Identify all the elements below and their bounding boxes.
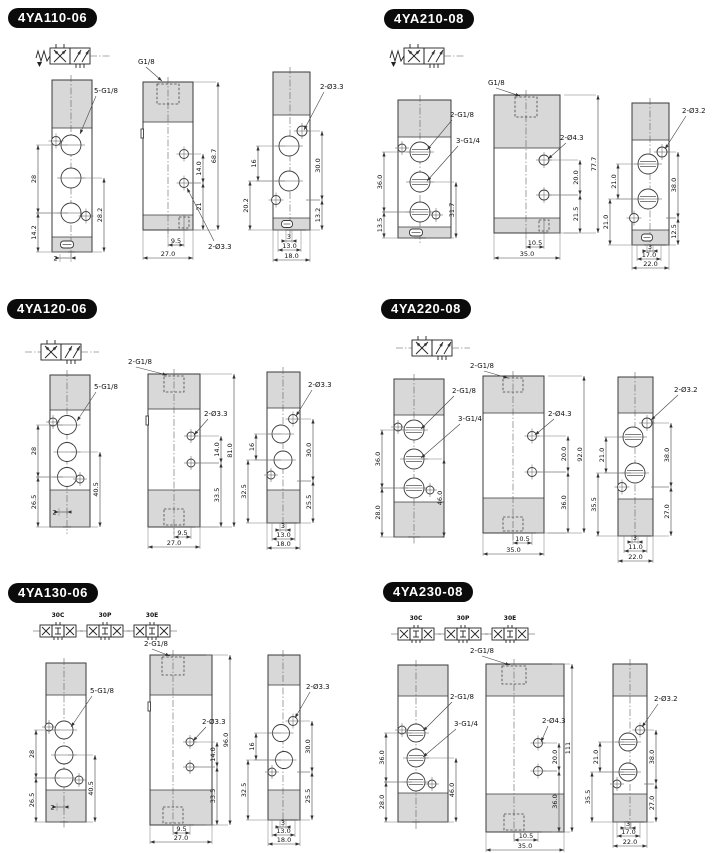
port-label: 2-Ø3.3 xyxy=(208,243,232,251)
dim-label: 18.0 xyxy=(277,836,291,844)
dimension-arrowhead xyxy=(384,782,387,787)
dimension-arrowhead xyxy=(93,818,96,823)
end-cap-shade xyxy=(398,793,448,822)
dim-label: 11.0 xyxy=(628,543,642,551)
dimension-arrowhead xyxy=(380,488,383,493)
port-label: 2-Ø3.3 xyxy=(204,410,228,418)
dimension-arrowhead xyxy=(556,256,561,259)
dim-label: 21.0 xyxy=(598,448,606,462)
dim-label: 35.5 xyxy=(590,497,598,511)
dim-label: 17.0 xyxy=(621,828,635,836)
leader-line xyxy=(187,188,214,241)
dimension-arrowhead xyxy=(246,460,249,465)
dimension-arrowhead xyxy=(557,743,560,748)
valve-symbol-box xyxy=(424,48,444,64)
dimension-arrowhead xyxy=(256,177,259,182)
port-label: 2-Ø4.3 xyxy=(560,134,584,142)
dimension-arrowhead xyxy=(557,767,560,772)
dim-label: 28.0 xyxy=(378,795,386,809)
leader-line xyxy=(421,424,460,458)
dimension-arrowhead xyxy=(382,212,385,217)
dimension-arrowhead xyxy=(36,213,39,218)
dimension-arrowhead xyxy=(380,430,383,435)
dimension-arrowhead xyxy=(34,730,37,735)
dimension-arrowhead xyxy=(254,456,257,461)
dimension-arrowhead xyxy=(102,248,105,253)
dimension-arrowhead xyxy=(246,519,249,524)
dimension-arrowhead xyxy=(654,730,657,735)
exhaust-triangle xyxy=(391,62,396,67)
dim-label: 2 xyxy=(50,804,54,812)
end-cap-shade xyxy=(394,502,444,537)
dimension-arrowhead xyxy=(534,838,539,841)
dimension-arrowhead xyxy=(604,437,607,442)
dimension-arrowhead xyxy=(616,195,619,200)
dimension-arrowhead xyxy=(268,842,273,845)
dimension-arrowhead xyxy=(320,131,323,136)
dim-label: 32.5 xyxy=(240,783,248,797)
dimension-arrowhead xyxy=(148,545,153,548)
dim-label: 25.5 xyxy=(304,789,312,803)
mounting-clip xyxy=(141,129,144,138)
dimension-arrowhead xyxy=(578,229,581,234)
leader-line xyxy=(295,692,310,718)
dim-label: 92.0 xyxy=(576,447,584,461)
mounting-clip xyxy=(146,416,149,425)
dimension-arrowhead xyxy=(254,434,257,439)
port-label: 2-Ø3.3 xyxy=(202,718,226,726)
dimension-arrowhead xyxy=(442,459,445,464)
dim-label: 38.0 xyxy=(648,750,656,764)
dim-label: 12.5 xyxy=(670,224,678,238)
dim-label: 46.0 xyxy=(436,491,444,505)
section-4YA120-06: 2826.540.5214.033.581.09.527.01632.530.0… xyxy=(25,340,332,550)
dim-label: 13.2 xyxy=(314,208,322,222)
dim-label: 81.0 xyxy=(226,443,234,457)
dimension-arrowhead xyxy=(570,828,573,833)
dimension-arrowhead xyxy=(36,209,39,214)
dimension-arrowhead xyxy=(201,183,204,188)
dimension-arrowhead xyxy=(256,146,259,151)
dimension-arrowhead xyxy=(267,546,272,549)
dimension-arrowhead xyxy=(566,436,569,441)
dimension-arrowhead xyxy=(36,523,39,528)
dimension-arrowhead xyxy=(215,821,218,826)
dim-label: 2 xyxy=(53,255,57,263)
dimension-arrowhead xyxy=(208,840,213,843)
dim-label: 22.0 xyxy=(628,553,642,561)
dimension-arrowhead xyxy=(291,537,296,540)
dimension-arrowhead xyxy=(608,199,611,204)
dimension-arrowhead xyxy=(608,241,611,246)
dimension-arrowhead xyxy=(590,772,593,777)
port-label: 2-G1/8 xyxy=(470,362,494,370)
dimension-arrowhead xyxy=(79,129,84,134)
dim-label: 21.0 xyxy=(602,215,610,229)
dim-label: 3 xyxy=(287,233,291,241)
dimension-arrowhead xyxy=(248,226,251,231)
dimension-arrowhead xyxy=(228,655,231,660)
dimension-arrowhead xyxy=(560,848,565,851)
dimension-arrowhead xyxy=(254,756,257,761)
port-label: 2-Ø3.3 xyxy=(320,83,344,91)
dim-label: 20.0 xyxy=(560,447,568,461)
dimension-arrowhead xyxy=(643,844,648,847)
solenoid-shade xyxy=(398,666,448,697)
dimension-arrowhead xyxy=(439,341,444,346)
leader-line xyxy=(71,696,92,727)
dimension-arrowhead xyxy=(36,248,39,253)
symbol-variant-label: 30P xyxy=(99,612,112,619)
dimension-arrowhead xyxy=(566,468,569,473)
dim-label: 16 xyxy=(250,159,258,167)
dimension-arrowhead xyxy=(578,160,581,165)
dimension-arrowhead xyxy=(613,844,618,847)
dimension-arrowhead xyxy=(676,152,679,157)
drawing-canvas: 2814.228.2214.02168.79.527.01620.230.013… xyxy=(0,0,712,853)
dim-label: 33.5 xyxy=(209,789,217,803)
dimension-arrowhead xyxy=(669,423,672,428)
port-label: 2-Ø3.2 xyxy=(682,107,706,115)
dimension-arrowhead xyxy=(384,818,387,823)
dimension-arrowhead xyxy=(219,436,222,441)
dim-label: 27.0 xyxy=(648,796,656,810)
dim-label: 36.0 xyxy=(376,175,384,189)
dimension-arrowhead xyxy=(102,178,105,183)
spring-symbol xyxy=(36,51,50,61)
dimension-arrowhead xyxy=(654,818,657,823)
dimension-arrowhead xyxy=(196,545,201,548)
dim-label: 14.0 xyxy=(213,442,221,456)
leader-line xyxy=(651,395,678,420)
dimension-arrowhead xyxy=(311,477,314,482)
exhaust-triangle xyxy=(37,62,42,67)
dimension-arrowhead xyxy=(454,758,457,763)
dimension-arrowhead xyxy=(382,234,385,239)
dim-label: 38.0 xyxy=(663,448,671,462)
dimension-arrowhead xyxy=(201,154,204,159)
dim-label: 36.0 xyxy=(374,452,382,466)
solenoid-shade xyxy=(632,104,669,141)
dimension-arrowhead xyxy=(215,763,218,768)
dimension-arrowhead xyxy=(320,196,323,201)
dim-label: 20.2 xyxy=(242,198,250,212)
solenoid-shade xyxy=(398,101,451,138)
dimension-arrowhead xyxy=(34,774,37,779)
dimension-arrowhead xyxy=(676,218,679,223)
leader-line xyxy=(427,146,458,181)
dimension-arrowhead xyxy=(649,559,654,562)
dim-label: 35.0 xyxy=(506,546,520,554)
dimension-arrowhead xyxy=(596,95,599,100)
valve-symbol-box xyxy=(432,340,452,356)
dim-label: 21.0 xyxy=(592,750,600,764)
section-title-badge: 4YA220-08 xyxy=(381,299,471,319)
dimension-arrowhead xyxy=(310,721,313,726)
dimension-arrowhead xyxy=(454,182,457,187)
dimension-arrowhead xyxy=(36,425,39,430)
dimension-arrowhead xyxy=(219,523,222,528)
dim-label: 16 xyxy=(248,742,256,750)
dimension-arrowhead xyxy=(380,484,383,489)
dim-label: 33.5 xyxy=(213,488,221,502)
dim-label: 36.0 xyxy=(551,794,559,808)
section-title-badge: 4YA130-06 xyxy=(8,583,98,603)
dim-label: 28.2 xyxy=(96,208,104,222)
solenoid-shade xyxy=(50,376,90,411)
dimension-arrowhead xyxy=(676,214,679,219)
dimension-arrowhead xyxy=(384,733,387,738)
section-4YA210-08: 36.013.531.720.021.577.710.535.021.021.0… xyxy=(376,44,706,270)
dim-label: 13.0 xyxy=(282,242,296,250)
dimension-arrowhead xyxy=(77,49,82,54)
dim-label: 9.5 xyxy=(176,825,186,833)
dimension-arrowhead xyxy=(36,145,39,150)
drawing-sheet: 2814.228.2214.02168.79.527.01620.230.013… xyxy=(0,0,712,853)
port-label: 2-G1/8 xyxy=(450,111,474,119)
dim-label: 13.0 xyxy=(276,531,290,539)
dim-label: 3 xyxy=(648,243,652,251)
dimension-arrowhead xyxy=(486,848,491,851)
section-4YA230-08: 30C30P30E36.028.046.020.036.011110.535.0… xyxy=(378,615,678,852)
symbol-variant-label: 30E xyxy=(504,615,516,622)
port-label: 2-Ø4.3 xyxy=(548,410,572,418)
dimension-arrowhead xyxy=(676,241,679,246)
dim-label: 21.5 xyxy=(572,207,580,221)
section-4YA110-06: 2814.228.2214.02168.79.527.01620.230.013… xyxy=(30,44,344,263)
port-label: 2-Ø3.3 xyxy=(308,381,332,389)
symbol-variant-label: 30P xyxy=(457,615,470,622)
dimension-arrowhead xyxy=(216,82,219,87)
port-label: 2-Ø3.2 xyxy=(654,695,678,703)
valve-symbol-box xyxy=(70,48,90,64)
dim-label: 13.5 xyxy=(376,218,384,232)
dimension-arrowhead xyxy=(248,181,251,186)
dimension-arrowhead xyxy=(382,152,385,157)
dimension-arrowhead xyxy=(296,546,301,549)
dimension-arrowhead xyxy=(34,778,37,783)
dim-label: 27.0 xyxy=(174,834,188,842)
end-cap-shade xyxy=(483,498,544,533)
dimension-arrowhead xyxy=(654,784,657,789)
solenoid-shade xyxy=(483,377,544,414)
dimension-arrowhead xyxy=(310,816,313,821)
dim-label: 40.5 xyxy=(87,781,95,795)
dimension-arrowhead xyxy=(669,532,672,537)
end-cap-shade xyxy=(398,227,451,238)
section-title-badge: 4YA230-08 xyxy=(383,582,473,602)
dim-label: 20.0 xyxy=(572,170,580,184)
dimension-arrowhead xyxy=(232,374,235,379)
dimension-arrowhead xyxy=(306,258,311,261)
solenoid-shade xyxy=(486,665,564,697)
dimension-arrowhead xyxy=(36,477,39,482)
dimension-arrowhead xyxy=(665,266,670,269)
port-label: 2-G1/8 xyxy=(144,640,168,648)
dimension-arrowhead xyxy=(582,529,585,534)
dimension-arrowhead xyxy=(654,780,657,785)
solenoid-shade xyxy=(150,656,212,696)
dimension-arrowhead xyxy=(604,469,607,474)
dimension-arrowhead xyxy=(598,742,601,747)
dimension-arrowhead xyxy=(189,256,194,259)
dim-label: 36.0 xyxy=(378,750,386,764)
dim-label: 26.5 xyxy=(30,495,38,509)
symbol-variant-label: 30C xyxy=(52,612,65,619)
dim-label: 14.0 xyxy=(209,747,217,761)
dim-label: 3 xyxy=(633,534,637,542)
symbol-variant-label: 30C xyxy=(410,615,423,622)
dim-label: 22.0 xyxy=(643,260,657,268)
dimension-arrowhead xyxy=(296,842,301,845)
dimension-arrowhead xyxy=(669,487,672,492)
solenoid-shade xyxy=(52,81,92,129)
dim-label: 10.5 xyxy=(519,832,533,840)
dimension-arrowhead xyxy=(596,532,599,537)
dimension-arrowhead xyxy=(582,376,585,381)
dim-label: 9.5 xyxy=(171,237,181,245)
dim-label: 18.0 xyxy=(284,252,298,260)
dimension-arrowhead xyxy=(596,229,599,234)
dimension-arrowhead xyxy=(219,463,222,468)
dimension-arrowhead xyxy=(273,258,278,261)
dim-label: 10.5 xyxy=(515,535,529,543)
port-label: 3-G1/4 xyxy=(458,415,482,423)
dim-label: 30.0 xyxy=(304,739,312,753)
dimension-arrowhead xyxy=(669,483,672,488)
section-title-badge: 4YA210-08 xyxy=(384,9,474,29)
dimension-arrowhead xyxy=(201,226,204,231)
dimension-arrowhead xyxy=(68,345,73,350)
dimension-arrowhead xyxy=(618,559,623,562)
dimension-arrowhead xyxy=(494,256,499,259)
symbol-variant-label: 30E xyxy=(146,612,158,619)
solenoid-shade xyxy=(273,73,310,116)
dim-label: 18.0 xyxy=(276,540,290,548)
port-label: 5-G1/8 xyxy=(94,87,118,95)
dimension-arrowhead xyxy=(98,452,101,457)
dim-label: 3 xyxy=(281,522,285,530)
dim-label: 14.2 xyxy=(30,225,38,239)
dim-label: 22.0 xyxy=(623,838,637,846)
dim-label: 68.7 xyxy=(210,149,218,163)
dimension-arrowhead xyxy=(320,200,323,205)
dimension-arrowhead xyxy=(311,419,314,424)
dim-label: 32.5 xyxy=(240,484,248,498)
dimension-arrowhead xyxy=(201,179,204,184)
dim-label: 20.0 xyxy=(551,750,559,764)
dimension-arrowhead xyxy=(76,416,81,422)
dim-label: 13.0 xyxy=(276,827,290,835)
dimension-arrowhead xyxy=(616,164,619,169)
port-label: G1/8 xyxy=(138,58,155,66)
solenoid-shade xyxy=(46,664,86,696)
dim-label: 9.5 xyxy=(177,529,187,537)
dimension-arrowhead xyxy=(590,818,593,823)
dimension-arrowhead xyxy=(384,778,387,783)
dim-label: 25.5 xyxy=(305,495,313,509)
spring-symbol xyxy=(390,51,404,61)
dimension-arrowhead xyxy=(311,481,314,486)
dimension-arrowhead xyxy=(310,768,313,773)
dimension-arrowhead xyxy=(215,767,218,772)
dimension-arrowhead xyxy=(216,226,219,231)
dimension-arrowhead xyxy=(596,473,599,478)
port-label: 2-Ø3.3 xyxy=(306,683,330,691)
dimension-arrowhead xyxy=(311,519,314,524)
section-title-badge: 4YA110-06 xyxy=(8,8,97,28)
dim-label: 96.0 xyxy=(222,733,230,747)
dimension-arrowhead xyxy=(540,552,545,555)
port-label: 2-Ø4.3 xyxy=(542,717,566,725)
dimension-arrowhead xyxy=(36,473,39,478)
section-4YA130-06: 30C30P30E2826.540.5214.033.596.09.527.01… xyxy=(28,612,330,846)
dimension-arrowhead xyxy=(578,195,581,200)
dim-label: 28 xyxy=(30,175,38,183)
dimension-arrowhead xyxy=(98,523,101,528)
dimension-arrowhead xyxy=(454,234,457,239)
dimension-arrowhead xyxy=(454,818,457,823)
dimension-arrowhead xyxy=(598,768,601,773)
dim-label: 2 xyxy=(52,509,56,517)
mounting-clip xyxy=(148,702,151,711)
dimension-arrowhead xyxy=(557,771,560,776)
section-title-badge: 4YA120-06 xyxy=(7,299,97,319)
dim-label: 31.7 xyxy=(448,203,456,217)
dim-label: 28 xyxy=(28,750,36,758)
dimension-arrowhead xyxy=(232,523,235,528)
port-label: 2-Ø3.2 xyxy=(674,386,698,394)
dim-label: 46.0 xyxy=(448,783,456,797)
end-cap-shade xyxy=(267,490,300,523)
dimension-arrowhead xyxy=(219,459,222,464)
dimension-arrowhead xyxy=(643,549,648,552)
dim-label: 77.7 xyxy=(590,157,598,171)
dim-label: 111 xyxy=(564,742,572,754)
dim-label: 28.0 xyxy=(374,505,382,519)
dim-label: 3 xyxy=(626,820,630,828)
dim-label: 35.0 xyxy=(520,250,534,258)
port-label: G1/8 xyxy=(488,79,505,87)
dimension-arrowhead xyxy=(310,772,313,777)
solenoid-shade xyxy=(394,380,444,416)
solenoid-shade xyxy=(267,373,300,409)
dimension-arrowhead xyxy=(93,755,96,760)
port-label: 5-G1/8 xyxy=(94,383,118,391)
dimension-arrowhead xyxy=(71,256,76,259)
dim-label: 38.0 xyxy=(670,178,678,192)
dim-label: 16 xyxy=(248,443,256,451)
end-cap-shade xyxy=(618,499,653,536)
dim-label: 27.0 xyxy=(161,250,175,258)
dimension-arrowhead xyxy=(34,818,37,823)
port-label: 3-G1/4 xyxy=(454,720,478,728)
dimension-arrowhead xyxy=(566,472,569,477)
solenoid-shade xyxy=(268,656,300,686)
dim-label: 27.0 xyxy=(167,539,181,547)
dimension-arrowhead xyxy=(186,187,191,192)
dimension-arrowhead xyxy=(246,760,249,765)
dimension-arrowhead xyxy=(380,533,383,538)
dim-label: 30.0 xyxy=(305,443,313,457)
dimension-arrowhead xyxy=(566,529,569,534)
dimension-arrowhead xyxy=(320,226,323,231)
dimension-arrowhead xyxy=(431,49,436,54)
dimension-arrowhead xyxy=(382,208,385,213)
port-label: 2-G1/8 xyxy=(470,647,494,655)
dim-label: 35.5 xyxy=(584,790,592,804)
valve-symbol-box xyxy=(61,344,81,360)
